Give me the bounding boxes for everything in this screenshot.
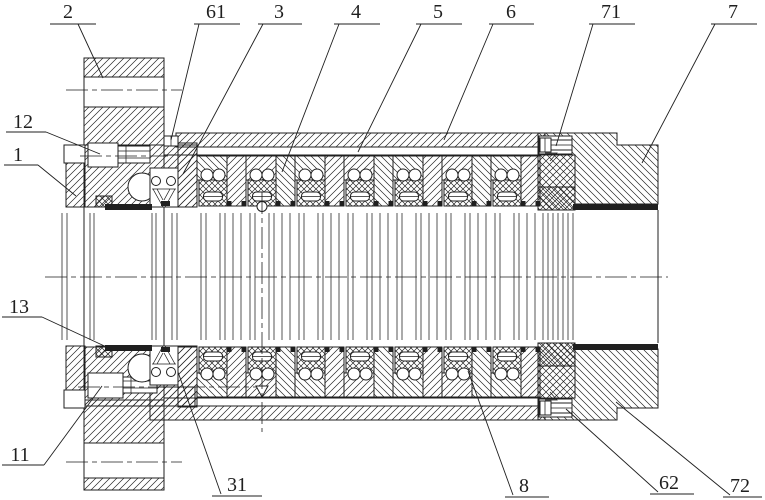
bearing-unit [246, 347, 295, 397]
bearing-unit [197, 347, 246, 397]
bearing-unit [295, 347, 344, 397]
bore-ring-lines [62, 213, 573, 340]
figure-canvas: 2 61 3 4 5 6 71 7 12 1 13 11 31 8 62 72 [0, 0, 765, 500]
callout-7: 7 [728, 1, 738, 23]
bearing-unit [491, 156, 540, 206]
callout-1: 1 [13, 144, 23, 166]
callout-3: 3 [274, 1, 284, 23]
flange-part-2 [66, 58, 182, 490]
bearing-unit [295, 156, 344, 206]
bearing-unit [344, 347, 393, 397]
bearing-unit [442, 347, 491, 397]
callout-61: 61 [206, 1, 226, 23]
callout-5: 5 [433, 1, 443, 23]
callout-12: 12 [13, 111, 33, 133]
bearing-unit [442, 156, 491, 206]
bearing-stack-top [197, 156, 540, 206]
elastic-ring-part-13 [105, 201, 658, 352]
end-cap-part-7 [538, 133, 658, 420]
bearing-unit [393, 347, 442, 397]
callout-72: 72 [730, 475, 750, 497]
callout-13: 13 [9, 296, 29, 318]
callout-4: 4 [351, 1, 361, 23]
bearing-unit [246, 156, 295, 206]
bearing-stack-bottom [197, 347, 540, 397]
callout-6: 6 [506, 1, 516, 23]
callout-11: 11 [10, 444, 29, 466]
bearing-unit [344, 156, 393, 206]
callout-71: 71 [601, 1, 621, 23]
callout-2: 2 [63, 1, 73, 23]
callout-62: 62 [659, 472, 679, 494]
callout-31: 31 [227, 474, 247, 496]
assembly-section-drawing: 2 61 3 4 5 6 71 7 12 1 13 11 31 8 62 72 [0, 0, 765, 500]
bearing-unit [393, 156, 442, 206]
callout-8: 8 [519, 475, 529, 497]
bearing-unit [197, 156, 246, 206]
bearing-unit [491, 347, 540, 397]
